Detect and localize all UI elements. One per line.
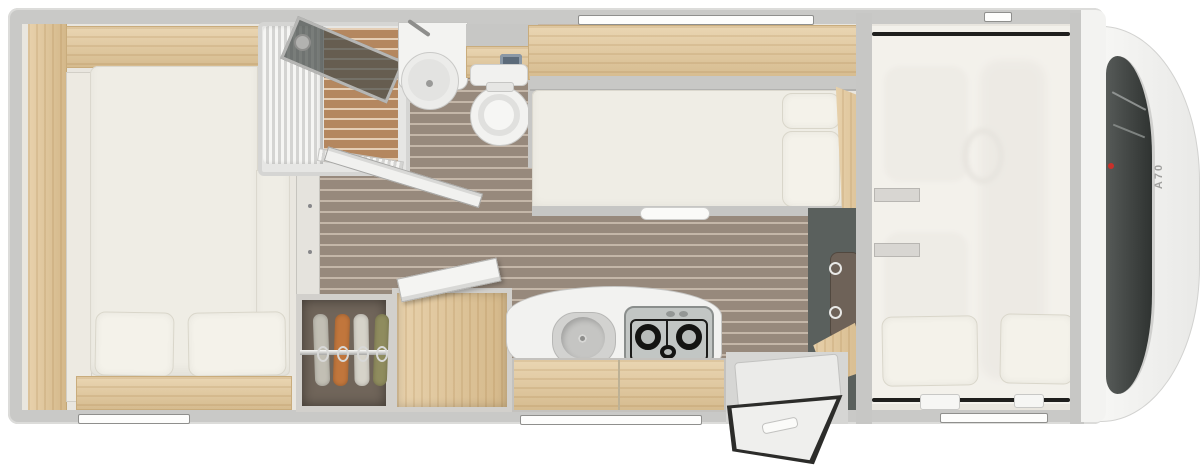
hanger-hook-2	[337, 346, 349, 362]
bed-headboard	[66, 26, 260, 68]
seat-hinge-ring-bottom	[829, 306, 842, 319]
alcove-window-edge-top	[872, 32, 1070, 36]
cab-door-handle-right	[1014, 394, 1044, 408]
window-cab-door	[940, 413, 1048, 423]
alcove-pillow-left	[881, 315, 978, 387]
brand-dot	[1108, 163, 1114, 169]
hob-knob-2	[666, 311, 675, 317]
hinge-dot-top	[308, 204, 312, 208]
washbasin-drain	[426, 80, 433, 87]
side-bed-shelf-ledge	[530, 76, 858, 91]
side-bed-handle	[640, 207, 710, 220]
alcove-bracket-bottom	[874, 243, 920, 257]
kitchen-cabinet-seam	[618, 360, 620, 410]
window-bottom-kitchen	[520, 415, 702, 425]
alcove-left-wall	[856, 13, 872, 424]
hob-burner-left	[635, 324, 661, 350]
window-top-alcove	[984, 12, 1012, 22]
model-label: A70	[1153, 156, 1167, 196]
window-bottom-bedroom	[78, 414, 190, 424]
bed-footboard	[76, 376, 292, 410]
hob-knob-3	[679, 311, 688, 317]
hob-burner-right	[676, 324, 702, 350]
toilet-seat-ring	[478, 94, 520, 136]
bedroom-partition	[296, 168, 320, 302]
toilet-lid-handle	[486, 82, 514, 92]
side-bed-pillow-top	[782, 93, 840, 129]
seat-hinge-ring-top	[829, 262, 842, 275]
rear-bed-pillow-right	[187, 311, 286, 377]
bedside-cabinet	[66, 72, 92, 402]
hob-knob-1	[653, 311, 662, 317]
side-bed-head-shelf	[528, 25, 858, 80]
fridge-unit	[392, 288, 512, 412]
cab-door-handle-left	[920, 394, 960, 410]
hinge-dot-bottom	[308, 250, 312, 254]
window-top-side-bed	[578, 15, 814, 25]
shower-head-icon	[294, 34, 311, 51]
alcove-bracket-top	[874, 188, 920, 202]
hanger-hook-1	[317, 346, 329, 362]
kitchen-sink-drain	[578, 334, 587, 343]
hanger-hook-3	[357, 346, 369, 362]
rear-wardrobe-cabinet	[28, 24, 67, 410]
body-front-strip	[1081, 10, 1106, 422]
windshield	[1106, 56, 1155, 394]
alcove-pillow-right	[999, 313, 1074, 384]
motorhome-floorplan: A70	[0, 0, 1200, 469]
hob-burner-small	[660, 345, 676, 359]
hanger-hook-4	[376, 346, 388, 362]
rear-bed-pillow-left	[94, 311, 174, 376]
side-bed-pillow-bottom	[782, 131, 840, 207]
